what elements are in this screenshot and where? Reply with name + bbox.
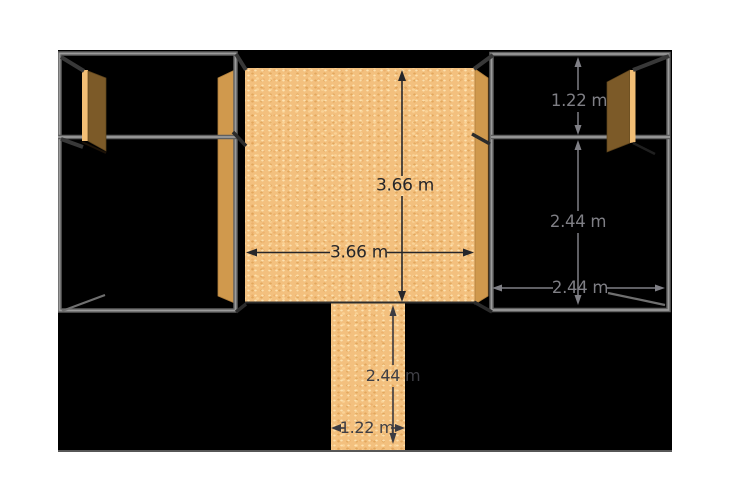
right-room-upper-height-label: 1.22 m	[551, 93, 607, 110]
wall-width-label: 3.66 m	[330, 245, 388, 262]
left-door-panel	[82, 70, 106, 153]
right-room-width-label: 2.44 m	[552, 280, 608, 297]
drawing-canvas: 3.66 m 3.66 m 1.22 m 2.44 m 2.44 m 2.44 …	[58, 50, 672, 452]
model-viewport: 3.66 m 3.66 m 1.22 m 2.44 m 2.44 m 2.44 …	[0, 0, 730, 503]
strip-width-label: 1.22 m	[340, 420, 395, 436]
right-door-panel	[607, 70, 655, 154]
right-wall-side-panel	[475, 69, 488, 304]
right-room-lower-height-label: 2.44 m	[550, 214, 606, 231]
wall-height-label: 3.66 m	[376, 178, 434, 195]
strip-height-label: 2.44 m	[366, 368, 421, 384]
